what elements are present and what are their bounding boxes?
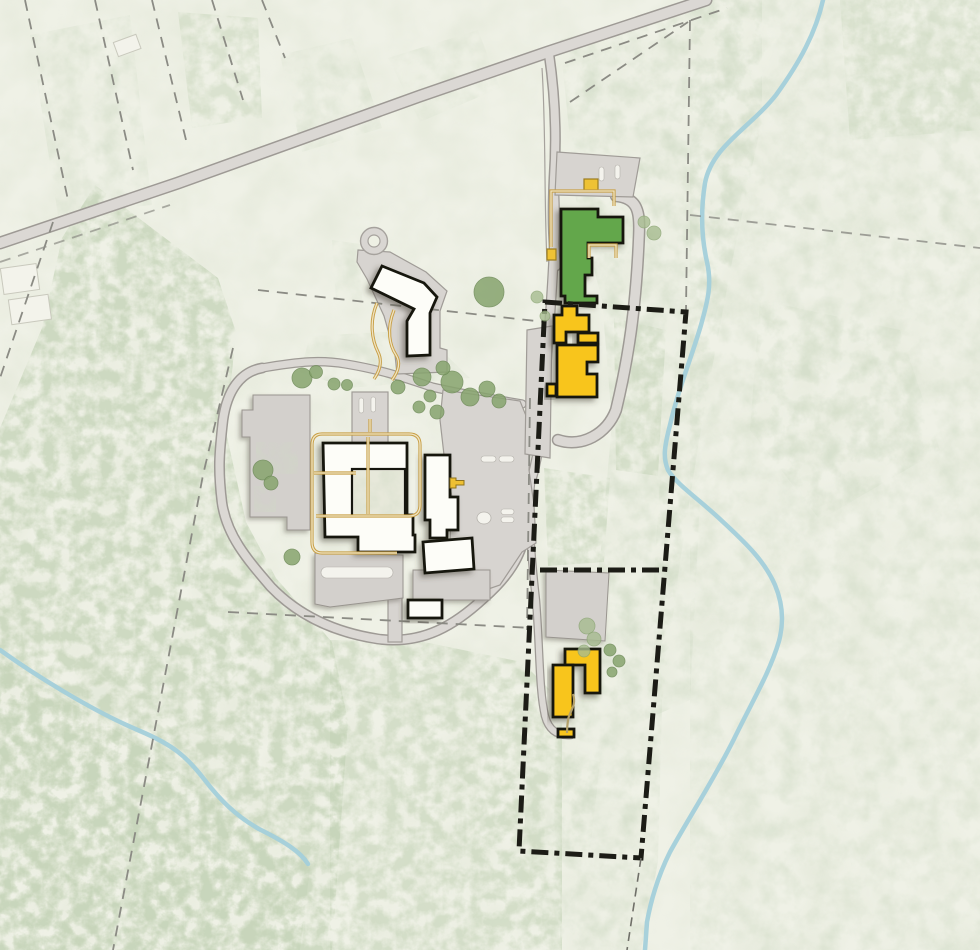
cul-de-sac-island bbox=[368, 235, 380, 247]
parking-bay bbox=[359, 398, 364, 413]
tree bbox=[461, 388, 479, 406]
site-plan-svg bbox=[0, 0, 980, 950]
tree bbox=[531, 291, 543, 303]
tree bbox=[647, 226, 661, 240]
yellow-building-upper-arm bbox=[578, 333, 598, 343]
tree bbox=[604, 644, 616, 656]
tree bbox=[578, 645, 590, 657]
tree bbox=[579, 618, 595, 634]
proposed-building-small-south bbox=[408, 600, 442, 618]
tree bbox=[328, 378, 340, 390]
tree bbox=[587, 632, 601, 646]
tree bbox=[430, 405, 444, 419]
tree bbox=[310, 366, 323, 379]
tree bbox=[492, 394, 506, 408]
neighbor-building bbox=[8, 294, 51, 324]
proposed-building-southeast bbox=[423, 538, 474, 573]
plaza-island bbox=[477, 512, 491, 524]
veg-nw-patch-b bbox=[178, 12, 262, 128]
tree bbox=[607, 667, 617, 677]
parking-strip bbox=[321, 567, 393, 578]
parking-bay bbox=[501, 517, 514, 523]
yellow-entrance-square bbox=[584, 179, 598, 190]
parking-bay bbox=[615, 165, 620, 179]
tree bbox=[264, 476, 278, 490]
tree bbox=[474, 277, 504, 307]
tree bbox=[413, 401, 425, 413]
courtyard-veg bbox=[354, 471, 403, 514]
tree bbox=[613, 655, 625, 667]
tree bbox=[479, 381, 495, 397]
yellow-entrance-square bbox=[547, 249, 556, 260]
tree bbox=[292, 368, 312, 388]
existing-barn-south-parcel bbox=[546, 570, 609, 641]
parking-bay bbox=[501, 509, 514, 515]
tree bbox=[424, 390, 436, 402]
tree bbox=[540, 311, 550, 321]
parking-bay bbox=[481, 456, 496, 462]
yellow-outbuilding bbox=[547, 384, 556, 396]
tree bbox=[342, 380, 353, 391]
veg-ne-corner bbox=[840, 0, 980, 140]
tree bbox=[391, 380, 405, 394]
veg-culdesac-west bbox=[332, 240, 362, 300]
veg-parcel-north-of-barn bbox=[544, 468, 610, 566]
existing-building-southeast bbox=[413, 570, 490, 600]
parking-bay bbox=[599, 167, 604, 181]
site-plan-page bbox=[0, 0, 980, 950]
tree bbox=[436, 361, 450, 375]
tree bbox=[413, 368, 431, 386]
parking-bay bbox=[499, 456, 514, 462]
parking-bay bbox=[371, 397, 376, 412]
tree bbox=[284, 549, 300, 565]
existing-building-south bbox=[315, 553, 403, 607]
tree bbox=[638, 216, 650, 228]
yellow-building-south-b bbox=[553, 665, 573, 717]
